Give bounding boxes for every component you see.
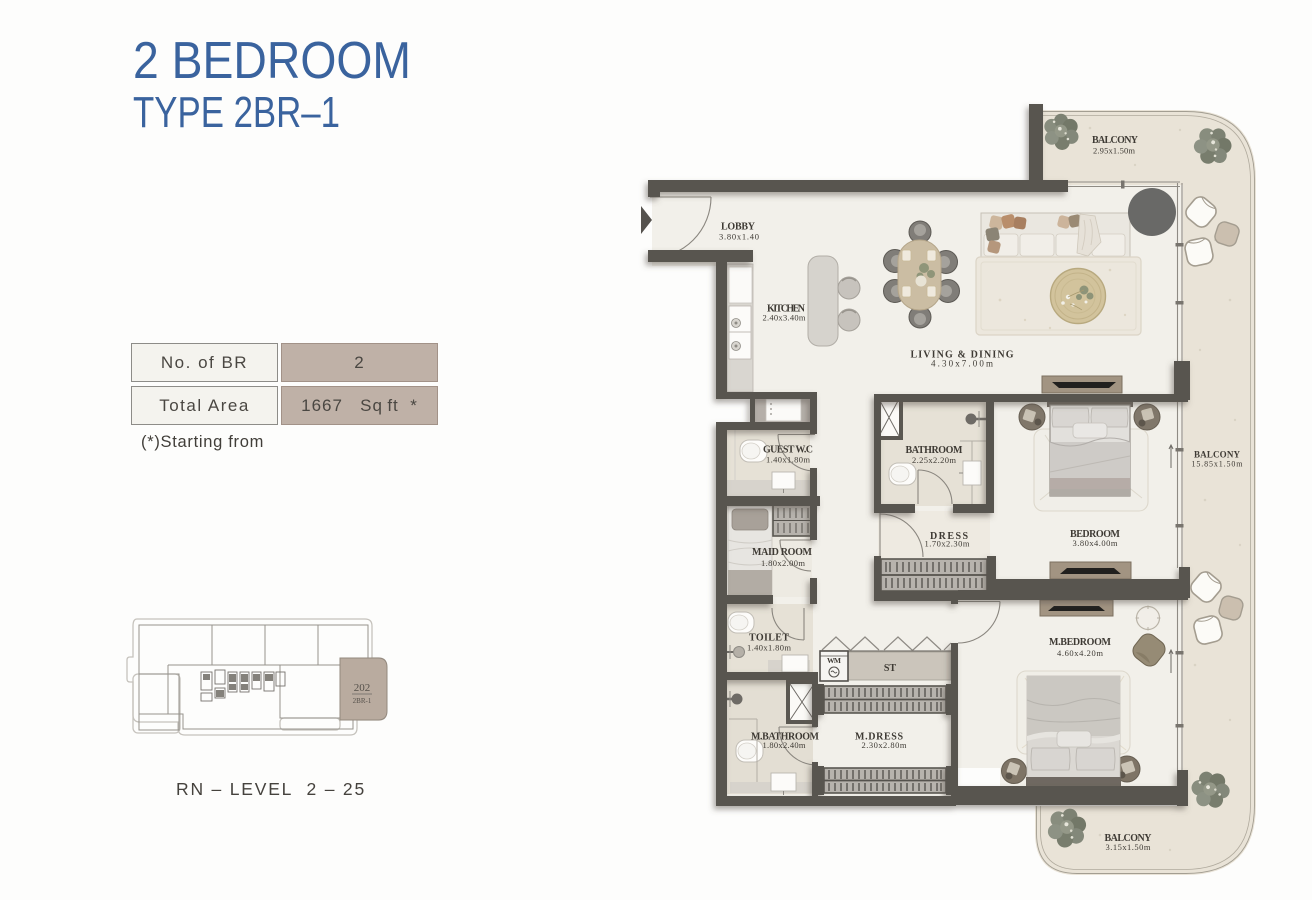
svg-text:3.15x1.50m: 3.15x1.50m xyxy=(1106,842,1151,852)
svg-text:BALCONY: BALCONY xyxy=(1194,450,1241,460)
svg-text:2.30x2.80m: 2.30x2.80m xyxy=(862,740,907,750)
svg-text:MAID ROOM: MAID ROOM xyxy=(752,547,813,558)
svg-text:WM: WM xyxy=(827,656,841,665)
svg-text:2.25x2.20m: 2.25x2.20m xyxy=(912,455,956,465)
svg-text:2.95x1.50m: 2.95x1.50m xyxy=(1093,146,1135,156)
svg-text:1.40x1.80m: 1.40x1.80m xyxy=(766,455,810,465)
svg-text:1.70x2.30m: 1.70x2.30m xyxy=(925,539,970,549)
svg-text:4.60x4.20m: 4.60x4.20m xyxy=(1057,648,1103,658)
svg-text:2.40x3.40m: 2.40x3.40m xyxy=(763,313,806,323)
svg-text:M.BEDROOM: M.BEDROOM xyxy=(1049,637,1112,648)
svg-text:202: 202 xyxy=(354,682,371,694)
svg-text:3.80x4.00m: 3.80x4.00m xyxy=(1073,538,1118,548)
svg-text:1.80x2.00m: 1.80x2.00m xyxy=(761,558,805,568)
svg-text:1.80x2.40m: 1.80x2.40m xyxy=(763,740,806,750)
svg-text:3.80x1.40: 3.80x1.40 xyxy=(719,232,759,242)
svg-text:15.85x1.50m: 15.85x1.50m xyxy=(1192,460,1244,469)
svg-text:1.40x1.80m: 1.40x1.80m xyxy=(747,643,791,653)
svg-text:2BR-1: 2BR-1 xyxy=(353,697,372,705)
svg-text:ST: ST xyxy=(884,663,897,674)
svg-text:BALCONY: BALCONY xyxy=(1092,135,1139,146)
